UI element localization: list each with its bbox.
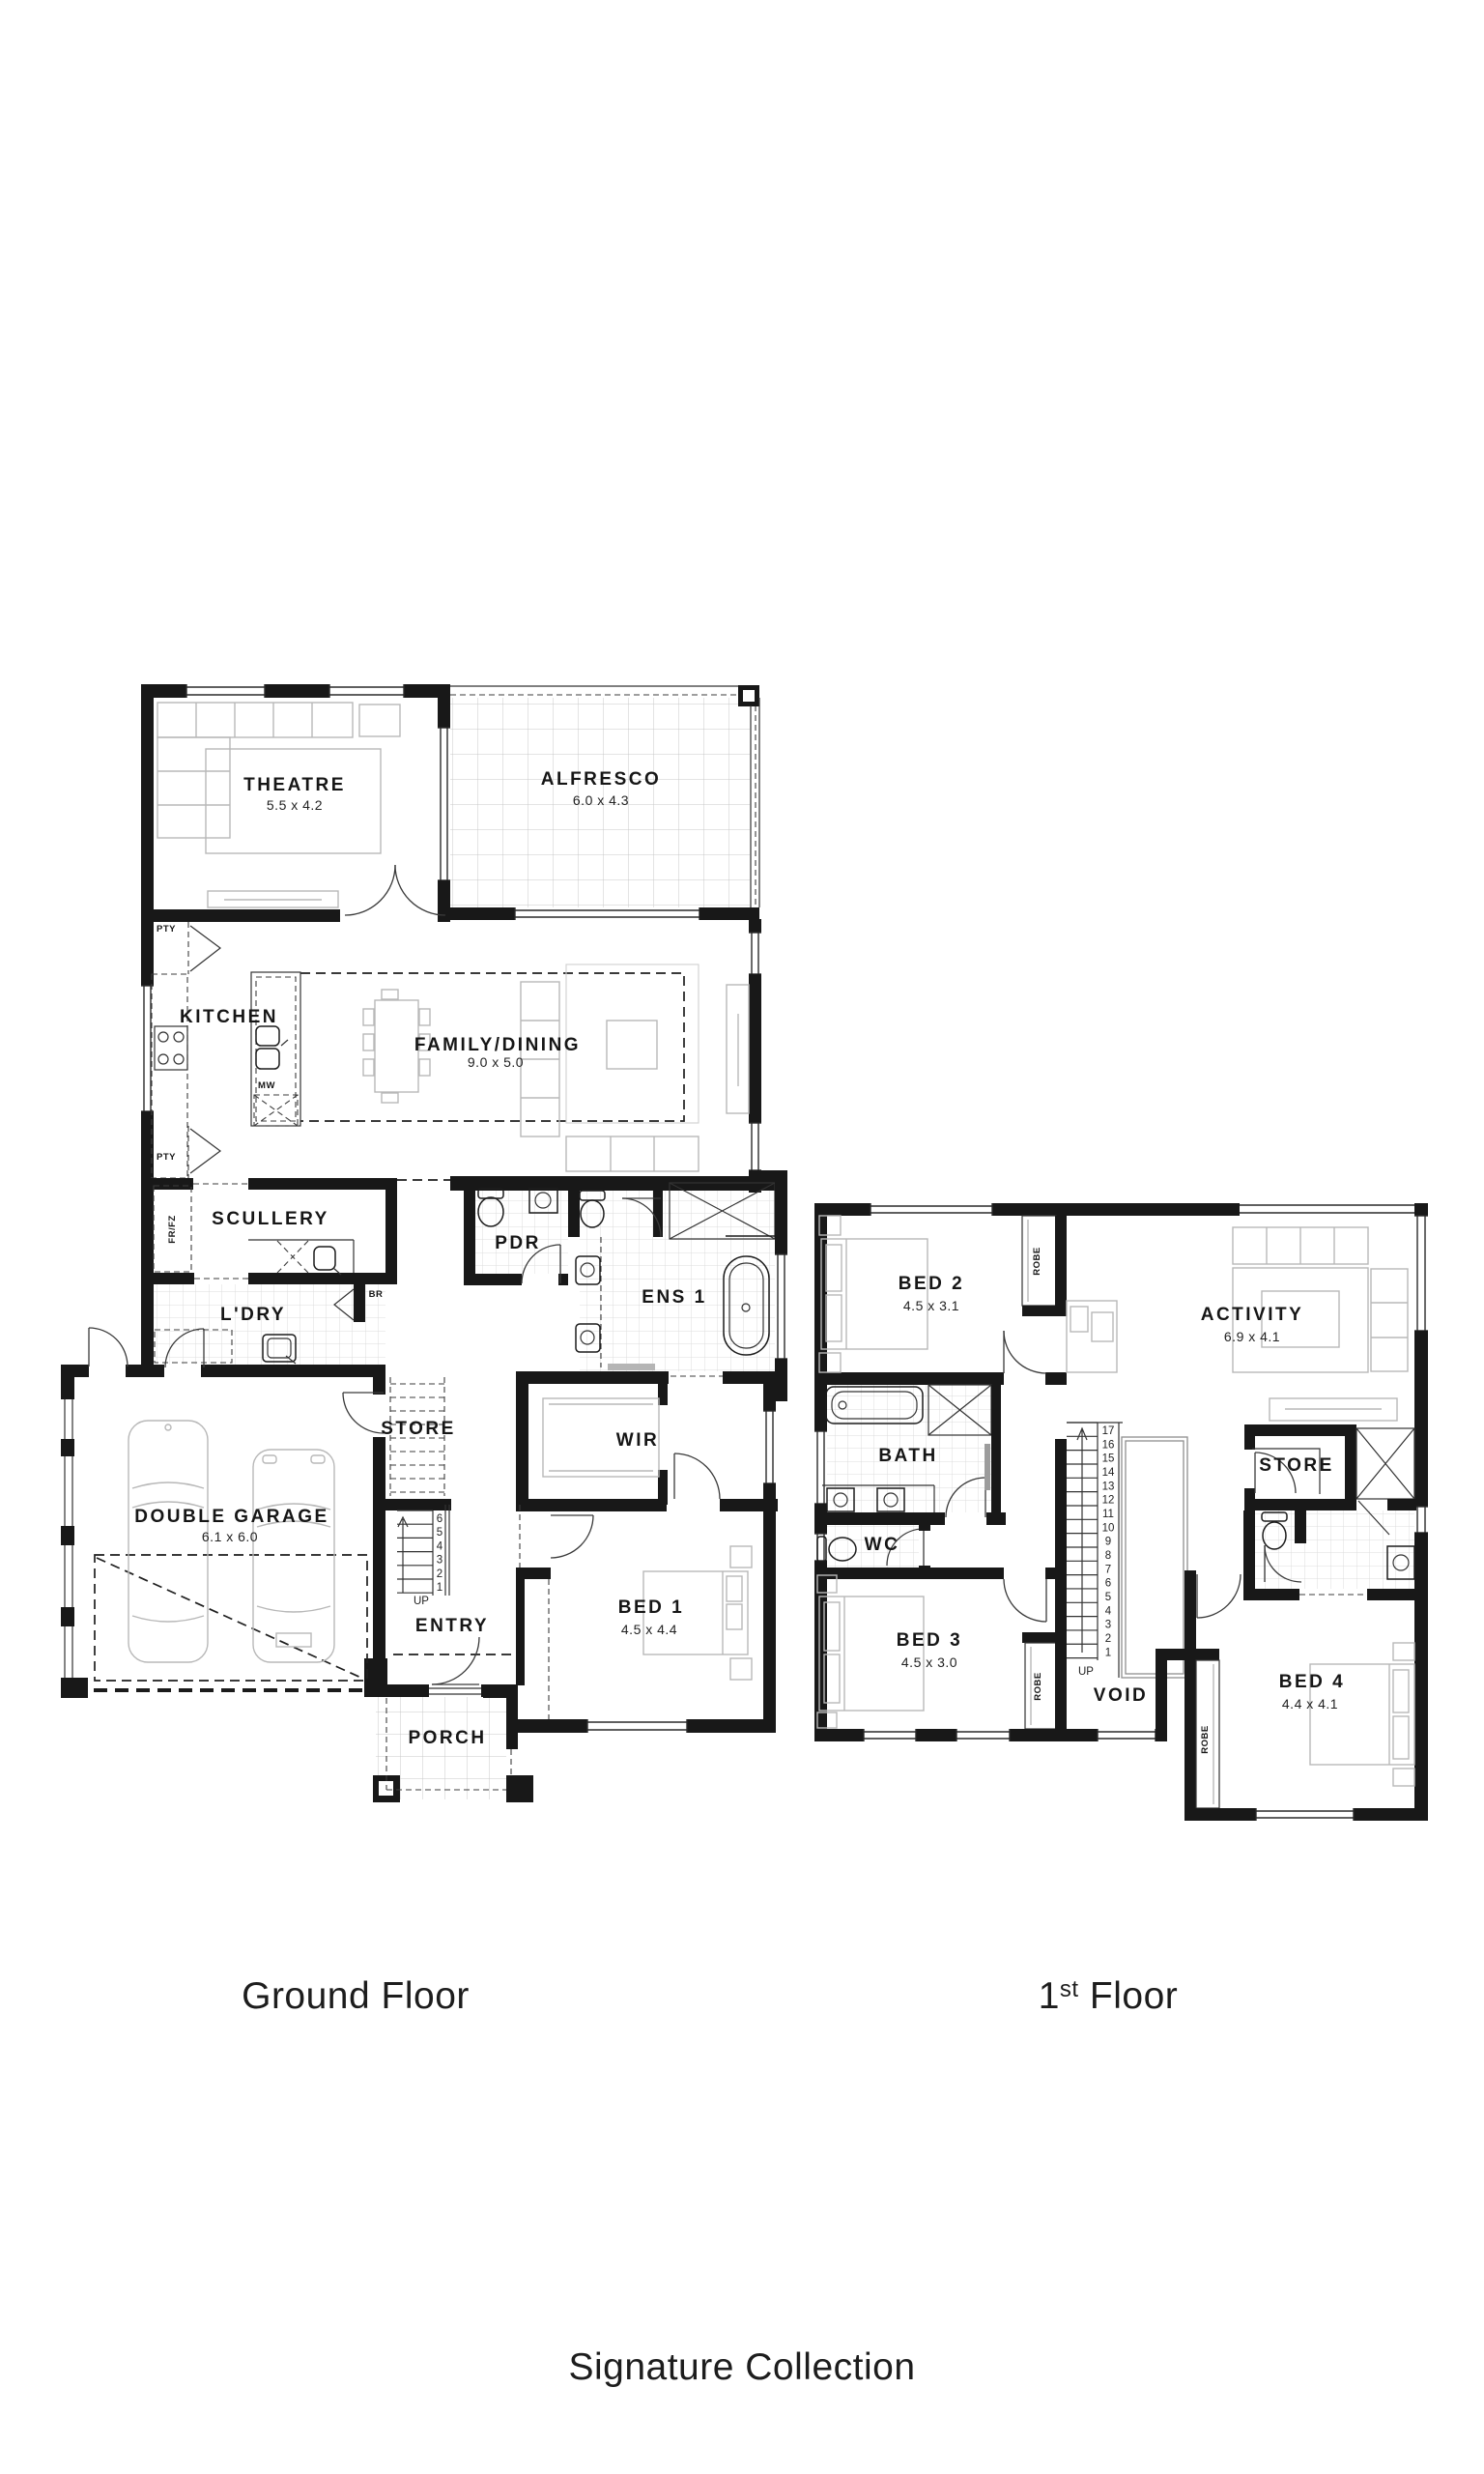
svg-text:ENTRY: ENTRY [415, 1616, 489, 1636]
svg-text:Signature Collection: Signature Collection [568, 2346, 915, 2388]
svg-text:4.5 x 4.4: 4.5 x 4.4 [621, 1622, 677, 1637]
svg-text:6.9 x 4.1: 6.9 x 4.1 [1224, 1329, 1280, 1344]
svg-text:ROBE: ROBE [1032, 1247, 1042, 1275]
svg-text:2: 2 [1105, 1633, 1111, 1645]
svg-text:3: 3 [437, 1555, 442, 1567]
svg-text:FAMILY/DINING: FAMILY/DINING [414, 1035, 581, 1055]
svg-text:17: 17 [1102, 1425, 1115, 1437]
svg-text:6.1 x 6.0: 6.1 x 6.0 [202, 1529, 258, 1544]
svg-text:5: 5 [1105, 1592, 1111, 1603]
svg-text:UP: UP [1078, 1666, 1094, 1678]
svg-text:BATH: BATH [878, 1446, 937, 1466]
svg-text:4.5 x 3.0: 4.5 x 3.0 [901, 1654, 957, 1670]
svg-text:4: 4 [437, 1540, 443, 1552]
svg-text:9: 9 [1105, 1537, 1111, 1548]
svg-text:5.5 x 4.2: 5.5 x 4.2 [267, 797, 323, 813]
svg-text:3: 3 [1105, 1620, 1111, 1631]
svg-text:ACTIVITY: ACTIVITY [1201, 1305, 1304, 1325]
svg-text:VOID: VOID [1094, 1685, 1148, 1706]
svg-text:16: 16 [1102, 1439, 1115, 1451]
svg-text:11: 11 [1102, 1509, 1114, 1520]
svg-text:WIR: WIR [616, 1430, 659, 1451]
svg-text:THEATRE: THEATRE [243, 775, 346, 795]
svg-text:8: 8 [1105, 1550, 1111, 1562]
svg-text:10: 10 [1102, 1522, 1115, 1534]
svg-text:BED 2: BED 2 [899, 1274, 964, 1294]
svg-text:PORCH: PORCH [408, 1728, 486, 1748]
svg-text:PTY: PTY [157, 1152, 176, 1163]
svg-text:BR: BR [369, 1289, 384, 1300]
svg-text:SCULLERY: SCULLERY [212, 1209, 329, 1229]
svg-text:BED 1: BED 1 [618, 1597, 684, 1618]
svg-text:1st Floor: 1st Floor [1039, 1975, 1179, 2017]
svg-text:9.0 x 5.0: 9.0 x 5.0 [468, 1054, 524, 1070]
svg-text:7: 7 [1105, 1564, 1111, 1575]
svg-text:5: 5 [437, 1527, 442, 1539]
svg-text:UP: UP [414, 1596, 429, 1607]
svg-text:4: 4 [1105, 1605, 1112, 1617]
svg-text:ROBE: ROBE [1200, 1725, 1211, 1753]
svg-text:STORE: STORE [1259, 1455, 1334, 1476]
svg-text:PTY: PTY [157, 924, 176, 935]
svg-text:6: 6 [437, 1513, 442, 1525]
svg-text:FR/FZ: FR/FZ [167, 1215, 178, 1243]
svg-text:2: 2 [437, 1568, 442, 1580]
svg-text:6: 6 [1105, 1578, 1111, 1590]
svg-text:13: 13 [1102, 1481, 1115, 1492]
svg-text:DOUBLE GARAGE: DOUBLE GARAGE [134, 1507, 328, 1527]
svg-text:14: 14 [1102, 1467, 1115, 1479]
svg-text:STORE: STORE [381, 1419, 456, 1439]
svg-text:6.0 x 4.3: 6.0 x 4.3 [573, 792, 629, 808]
svg-text:PDR: PDR [495, 1233, 541, 1253]
svg-text:BED 4: BED 4 [1279, 1672, 1345, 1692]
svg-text:BED 3: BED 3 [897, 1630, 962, 1651]
svg-text:1: 1 [1105, 1647, 1111, 1658]
svg-text:L'DRY: L'DRY [220, 1305, 286, 1325]
svg-text:ENS 1: ENS 1 [642, 1287, 706, 1308]
svg-text:Ground Floor: Ground Floor [242, 1975, 470, 2017]
svg-text:4.5 x 3.1: 4.5 x 3.1 [903, 1298, 959, 1313]
svg-text:KITCHEN: KITCHEN [180, 1007, 278, 1027]
svg-text:15: 15 [1102, 1453, 1115, 1465]
svg-text:MW: MW [258, 1080, 275, 1091]
svg-text:ROBE: ROBE [1033, 1672, 1043, 1700]
svg-text:ALFRESCO: ALFRESCO [541, 769, 662, 790]
svg-text:WC: WC [865, 1535, 900, 1555]
svg-text:12: 12 [1102, 1495, 1115, 1507]
svg-text:1: 1 [437, 1582, 442, 1594]
svg-text:4.4 x 4.1: 4.4 x 4.1 [1282, 1696, 1338, 1712]
